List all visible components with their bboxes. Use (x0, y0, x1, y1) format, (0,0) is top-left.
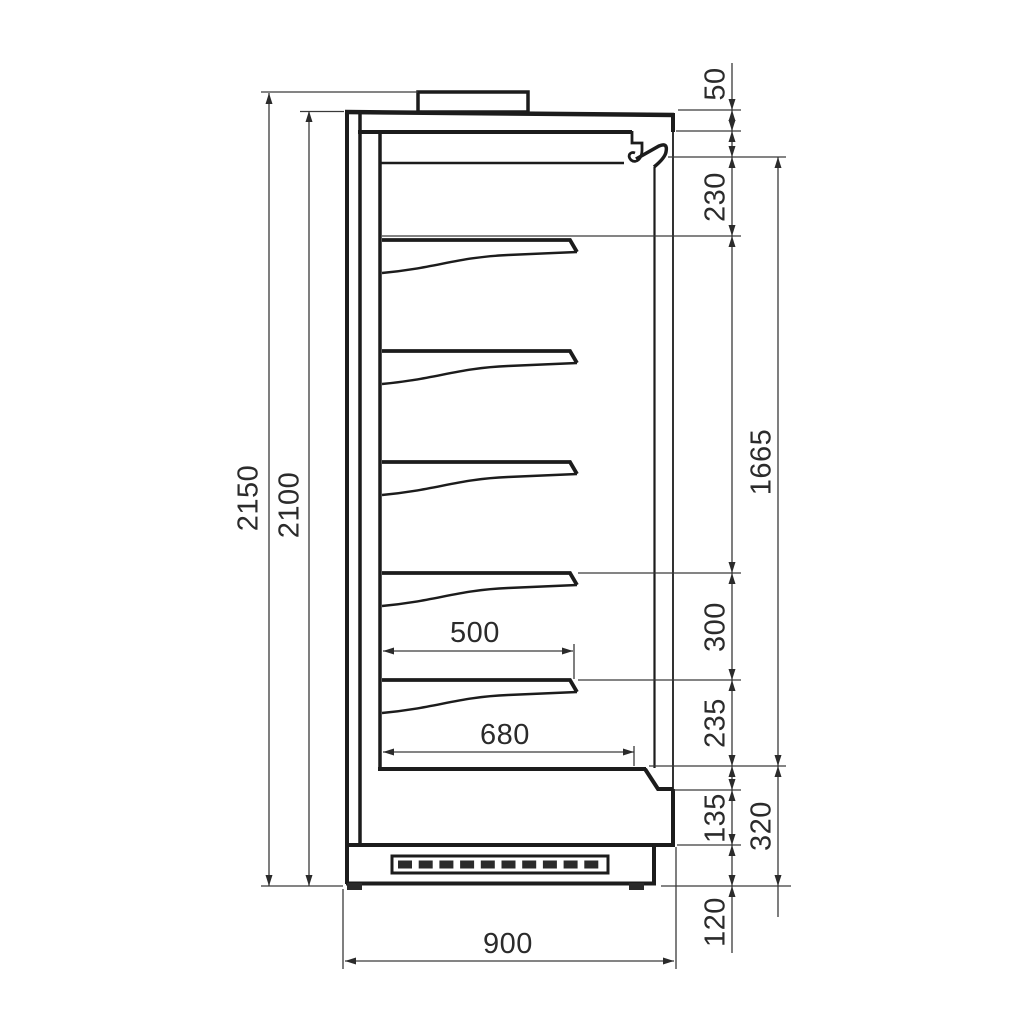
dim-deck-depth-label: 680 (480, 719, 530, 751)
vent-slot (543, 861, 557, 869)
dim-shelf-to-deck-label: 235 (700, 698, 732, 748)
vent-slot (460, 861, 474, 869)
vent-slot (398, 861, 412, 869)
vent-slot (564, 861, 578, 869)
vent-grille (392, 856, 608, 873)
dim-lower-front-panel-label: 135 (700, 793, 732, 843)
dim-body-height-label: 2100 (274, 472, 306, 539)
dim-overall-depth-label: 900 (483, 928, 533, 960)
vent-slot (419, 861, 433, 869)
shelf-2-underside (382, 363, 577, 384)
shelf-3-top (382, 462, 577, 474)
shelf-5-top (382, 680, 577, 692)
dim-shelf-spacing-label: 300 (700, 602, 732, 652)
cabinet-section-drawing: 2150 2100 50 230 1665 300 235 135 320 12… (0, 0, 1024, 1024)
shelf-2 (382, 351, 577, 384)
shelf-1-top (382, 240, 577, 252)
dim-display-opening-label: 1665 (746, 429, 778, 496)
dimension-labels: 2150 2100 50 230 1665 300 235 135 320 12… (233, 67, 778, 960)
vent-slot (481, 861, 495, 869)
cabinet-body (345, 92, 675, 890)
vent-slot (584, 861, 598, 869)
front-foot (629, 883, 644, 890)
fascia-nose (636, 145, 666, 167)
shelf-4 (382, 573, 577, 606)
dim-shelf-depth-label: 500 (450, 617, 500, 649)
shelf-4-underside (382, 585, 577, 606)
shelf-1-underside (382, 252, 577, 273)
dim-canopy-to-shelf-label: 230 (700, 172, 732, 222)
shelf-4-top (382, 573, 577, 585)
dim-base-section-label: 320 (746, 801, 778, 851)
vent-slot (439, 861, 453, 869)
dim-overall-height-label: 2150 (233, 465, 265, 532)
technical-drawing-canvas: 2150 2100 50 230 1665 300 235 135 320 12… (0, 0, 1024, 1024)
shelf-3-underside (382, 474, 577, 495)
dim-plinth-height-label: 120 (700, 897, 732, 947)
top-fan-housing (418, 92, 528, 112)
deck-front-chamfer (645, 769, 673, 789)
vent-slot (502, 861, 516, 869)
shelf-2-top (382, 351, 577, 363)
top-panel (345, 112, 674, 115)
vent-slot (522, 861, 536, 869)
rear-foot (347, 883, 362, 890)
shelf-5 (382, 680, 577, 713)
shelf-3 (382, 462, 577, 495)
dim-top-duct-label: 50 (700, 67, 732, 100)
shelf-5-underside (382, 692, 577, 713)
shelf-1 (382, 240, 577, 273)
